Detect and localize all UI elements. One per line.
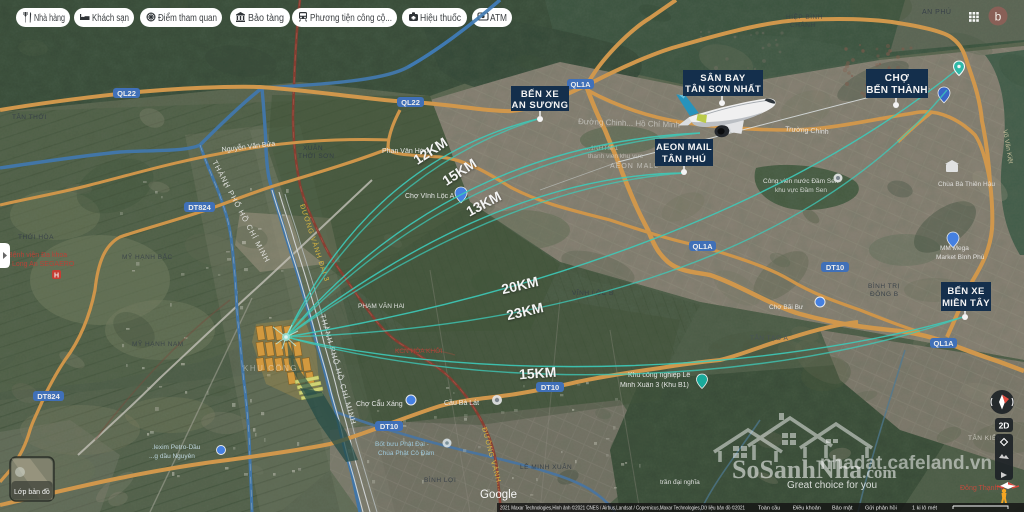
svg-text:Khách sạn: Khách sạn [92,13,129,24]
svg-text:Bảo mật: Bảo mật [832,506,853,512]
svg-text:Điểm tham quan: Điểm tham quan [158,12,217,24]
svg-text:Hiệu thuốc: Hiệu thuốc [420,12,461,24]
svg-text:Great choice for you: Great choice for you [787,480,877,491]
svg-text:2021 Maxar Technologies,Hình ả: 2021 Maxar Technologies,Hình ảnh ©2021 C… [500,505,745,512]
svg-text:Google: Google [480,489,517,501]
svg-text:b: b [995,10,1002,24]
svg-text:2D: 2D [999,421,1010,431]
svg-text:Phương tiện công cộ...: Phương tiện công cộ... [310,13,392,24]
svg-text:Bảo tàng: Bảo tàng [248,13,284,24]
svg-text:Nhà hàng: Nhà hàng [34,13,65,24]
svg-text:ATM: ATM [490,13,507,24]
svg-text:Điều khoản: Điều khoản [793,506,821,512]
svg-text:nhadat.cafeland.vn: nhadat.cafeland.vn [820,453,992,474]
svg-text:Lớp bản đồ: Lớp bản đồ [14,487,50,496]
svg-text:Toàn cầu: Toàn cầu [758,506,780,512]
svg-text:Gửi phản hồi: Gửi phản hồi [865,505,897,512]
svg-text:1 ki lô mét: 1 ki lô mét [912,506,938,512]
